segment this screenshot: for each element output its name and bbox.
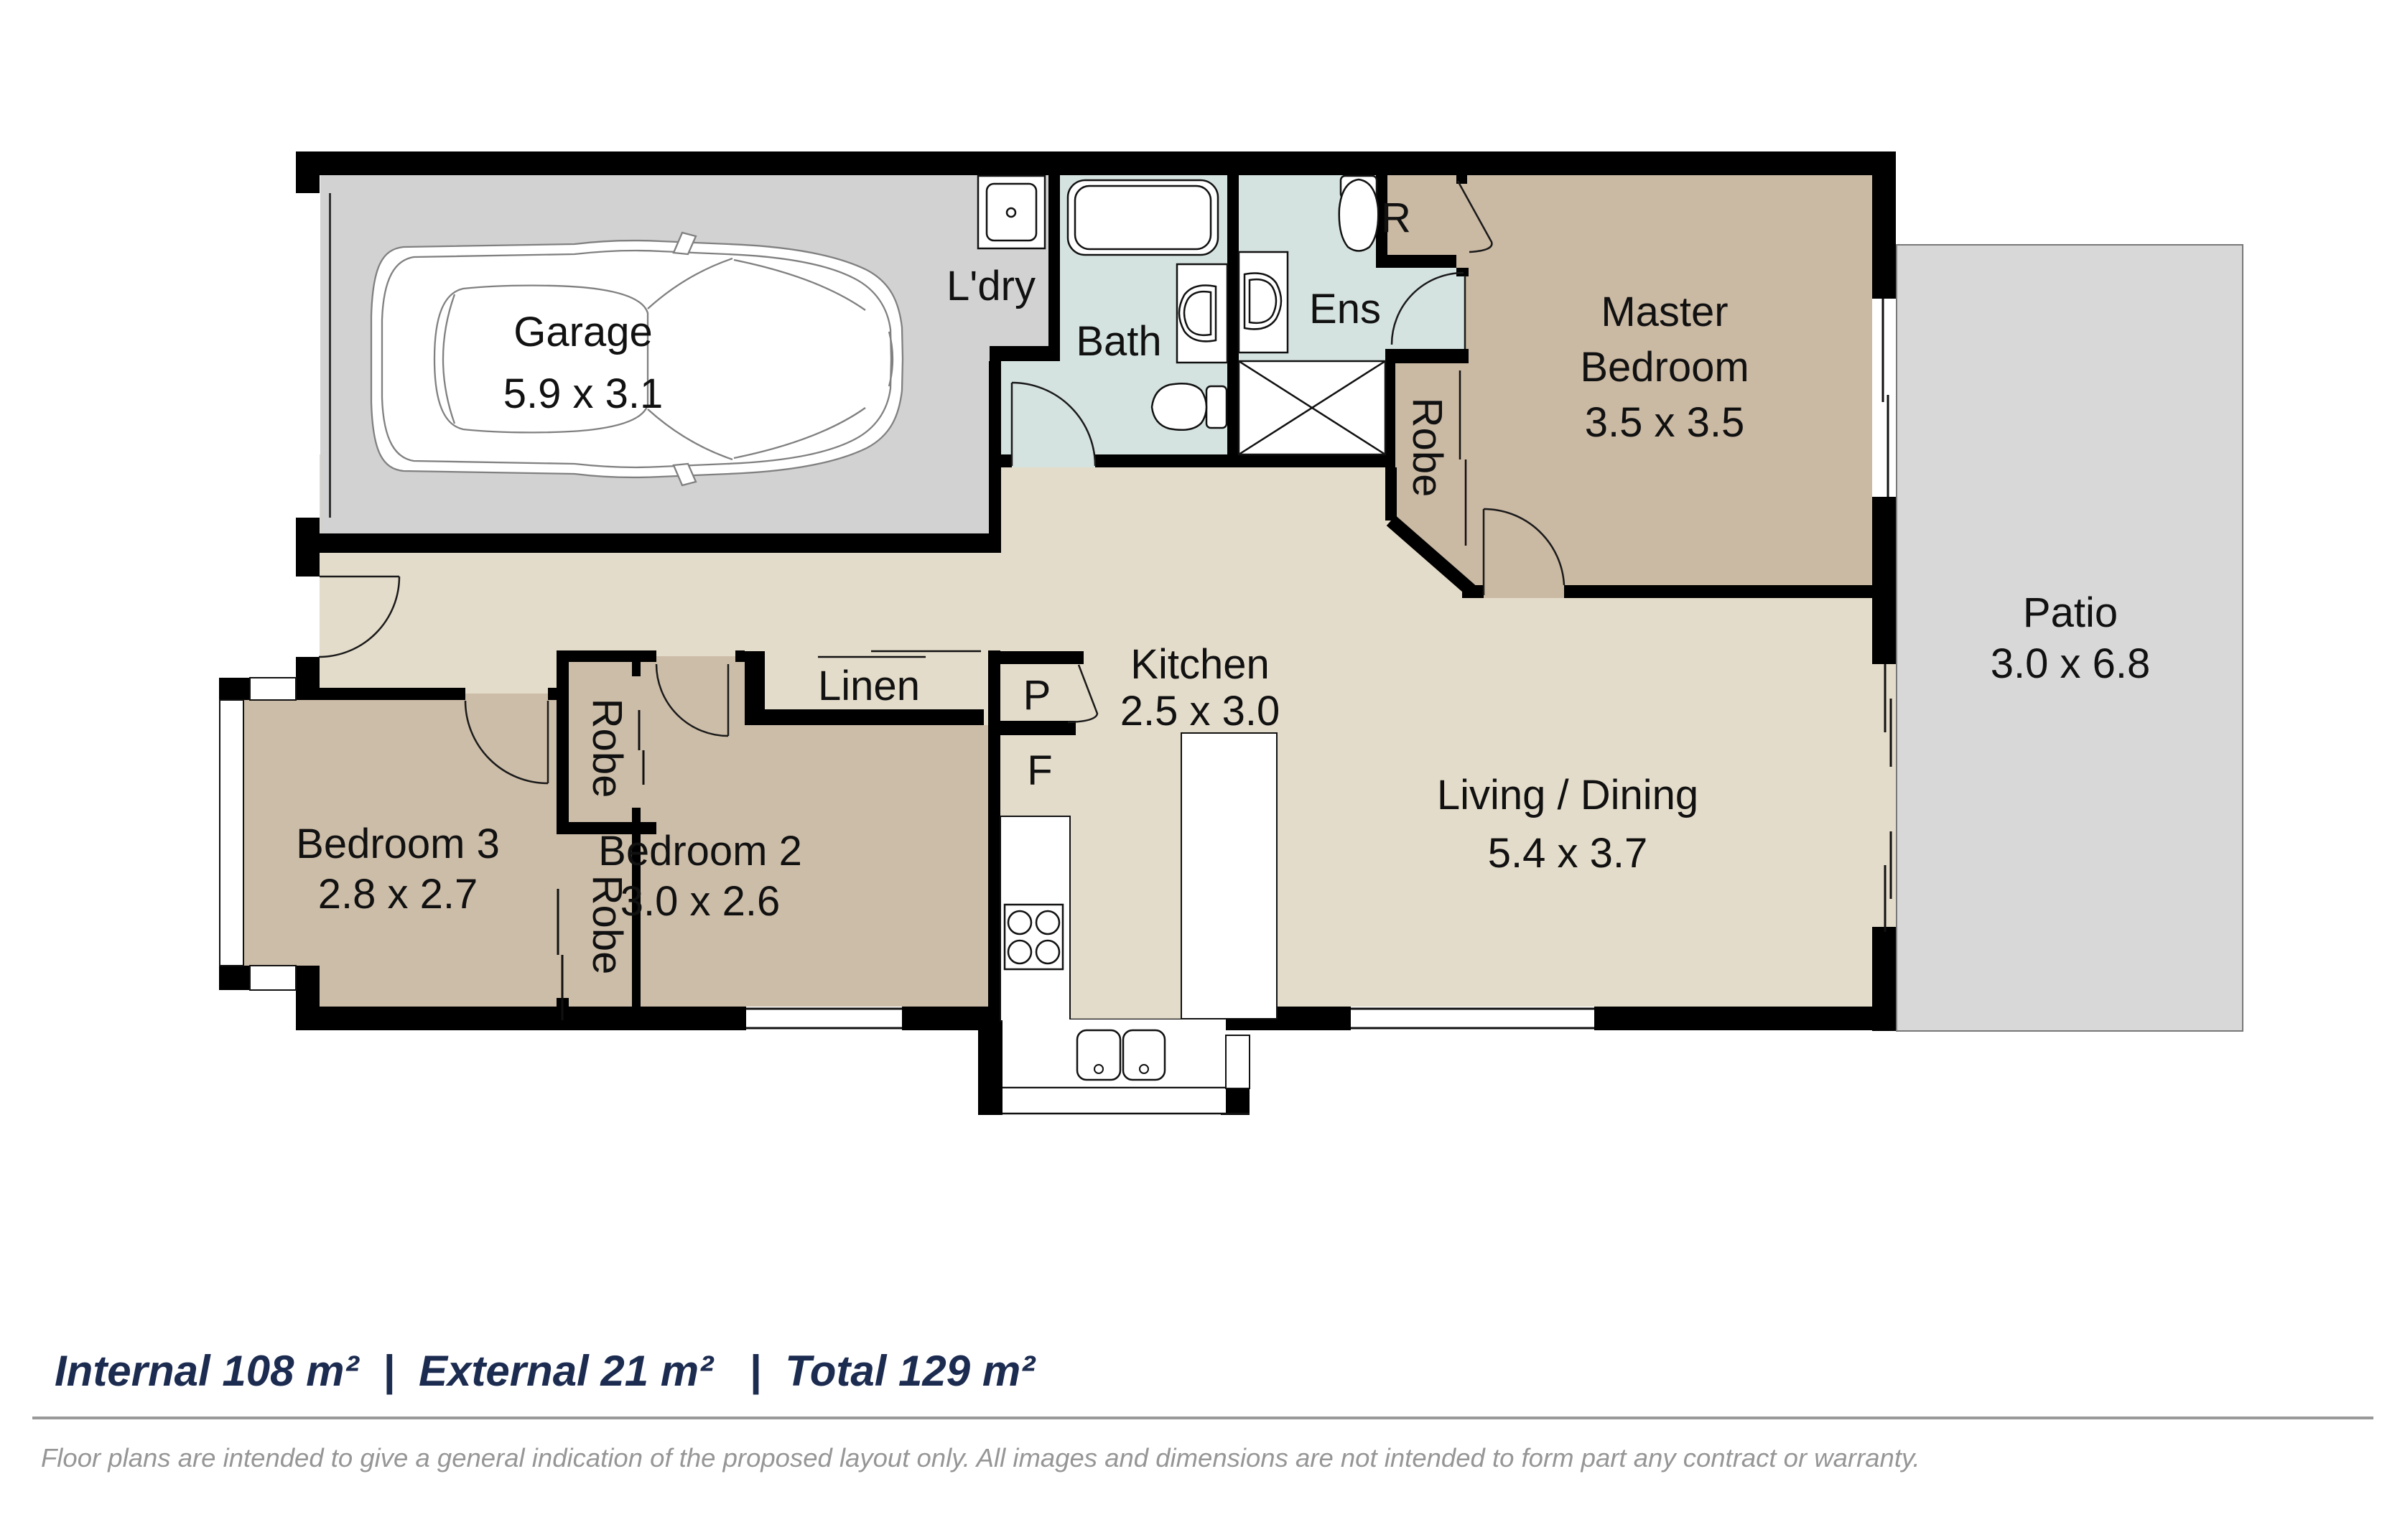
svg-text:Bedroom: Bedroom (1580, 344, 1749, 391)
svg-text:3.5 x 3.5: 3.5 x 3.5 (1585, 399, 1744, 446)
svg-text:3.0 x 6.8: 3.0 x 6.8 (1991, 640, 2150, 687)
svg-text:Internal 108 m² | External 2: Internal 108 m² | External 21 m² | Total… (55, 1347, 1036, 1395)
svg-text:F: F (1027, 747, 1052, 794)
svg-text:Patio: Patio (2023, 589, 2118, 636)
svg-text:2.8 x 2.7: 2.8 x 2.7 (318, 871, 478, 918)
svg-text:2.5 x 3.0: 2.5 x 3.0 (1120, 688, 1280, 734)
svg-text:Floor plans are intended to gi: Floor plans are intended to give a gener… (41, 1443, 1920, 1473)
svg-text:Ens: Ens (1309, 286, 1381, 332)
svg-text:Linen: Linen (818, 663, 920, 709)
svg-text:P: P (1023, 672, 1051, 719)
svg-text:Living / Dining: Living / Dining (1437, 772, 1698, 818)
svg-text:Bedroom 2: Bedroom 2 (598, 828, 802, 874)
svg-text:Bath: Bath (1076, 318, 1161, 365)
svg-text:Master: Master (1601, 289, 1728, 335)
svg-text:L'dry: L'dry (946, 263, 1036, 309)
svg-text:5.4 x 3.7: 5.4 x 3.7 (1488, 830, 1647, 877)
svg-text:5.9 x 3.1: 5.9 x 3.1 (503, 370, 663, 417)
svg-text:Robe: Robe (584, 699, 631, 798)
svg-text:Bedroom 3: Bedroom 3 (296, 821, 500, 867)
svg-text:3.0 x 2.6: 3.0 x 2.6 (620, 878, 780, 925)
svg-text:Robe: Robe (584, 875, 631, 975)
svg-text:Robe: Robe (1404, 398, 1451, 498)
svg-text:Garage: Garage (513, 309, 652, 355)
svg-text:R: R (1381, 195, 1411, 241)
svg-text:Kitchen: Kitchen (1130, 641, 1269, 688)
